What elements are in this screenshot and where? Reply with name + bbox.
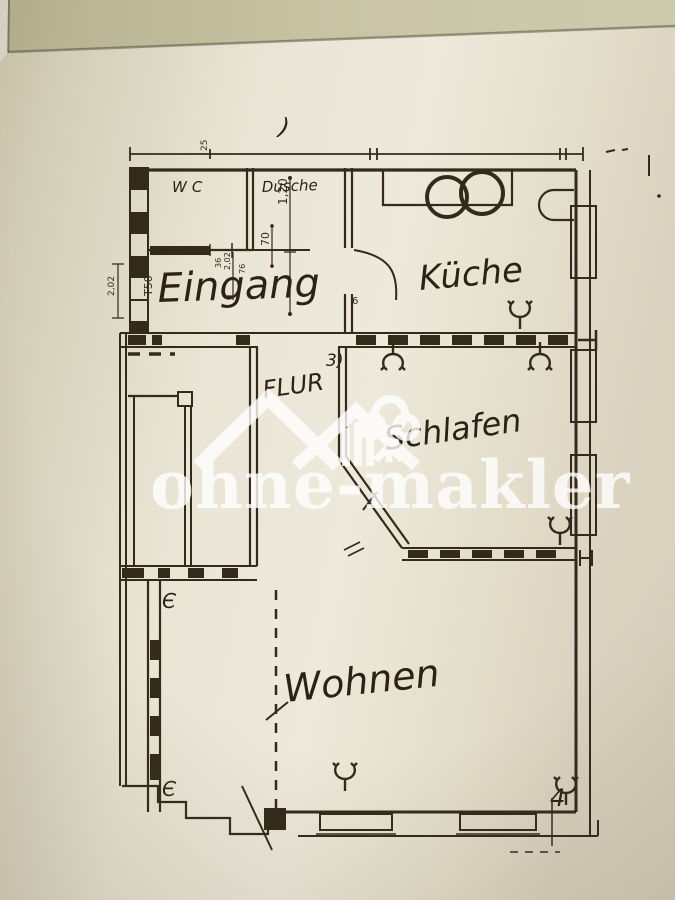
floor-plan-svg: 25 ) T50 2,02 [0, 0, 675, 900]
photo-vignette [0, 0, 675, 900]
floor-plan-photo: 25 ) T50 2,02 [0, 0, 675, 900]
